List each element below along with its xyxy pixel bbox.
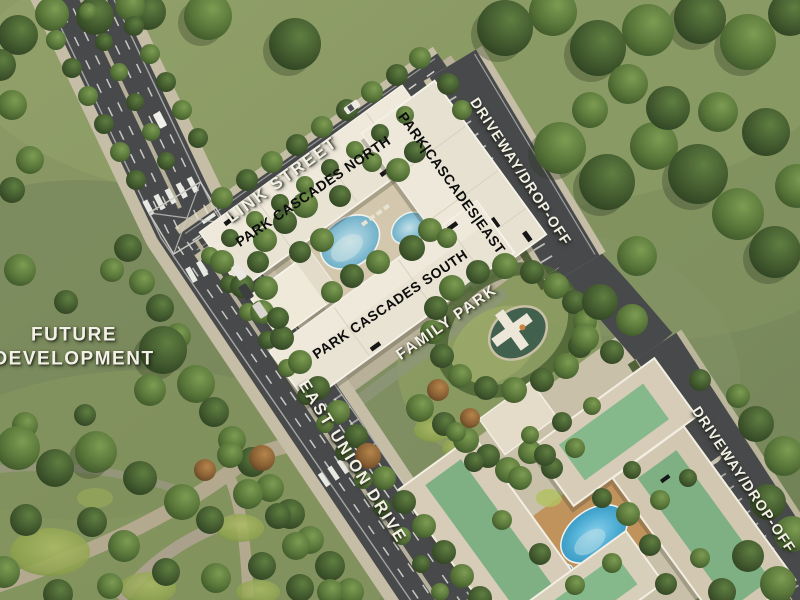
label-future-development-line1: FUTURE [0, 323, 155, 347]
lawn-mound [77, 488, 113, 508]
site-plan-aerial-view: LINK STREET PARK CASCADES NORTH PARK|CAS… [0, 0, 800, 600]
label-future-development-line2: DEVELOPMENT [0, 347, 155, 371]
label-future-development: FUTURE DEVELOPMENT [0, 323, 155, 371]
